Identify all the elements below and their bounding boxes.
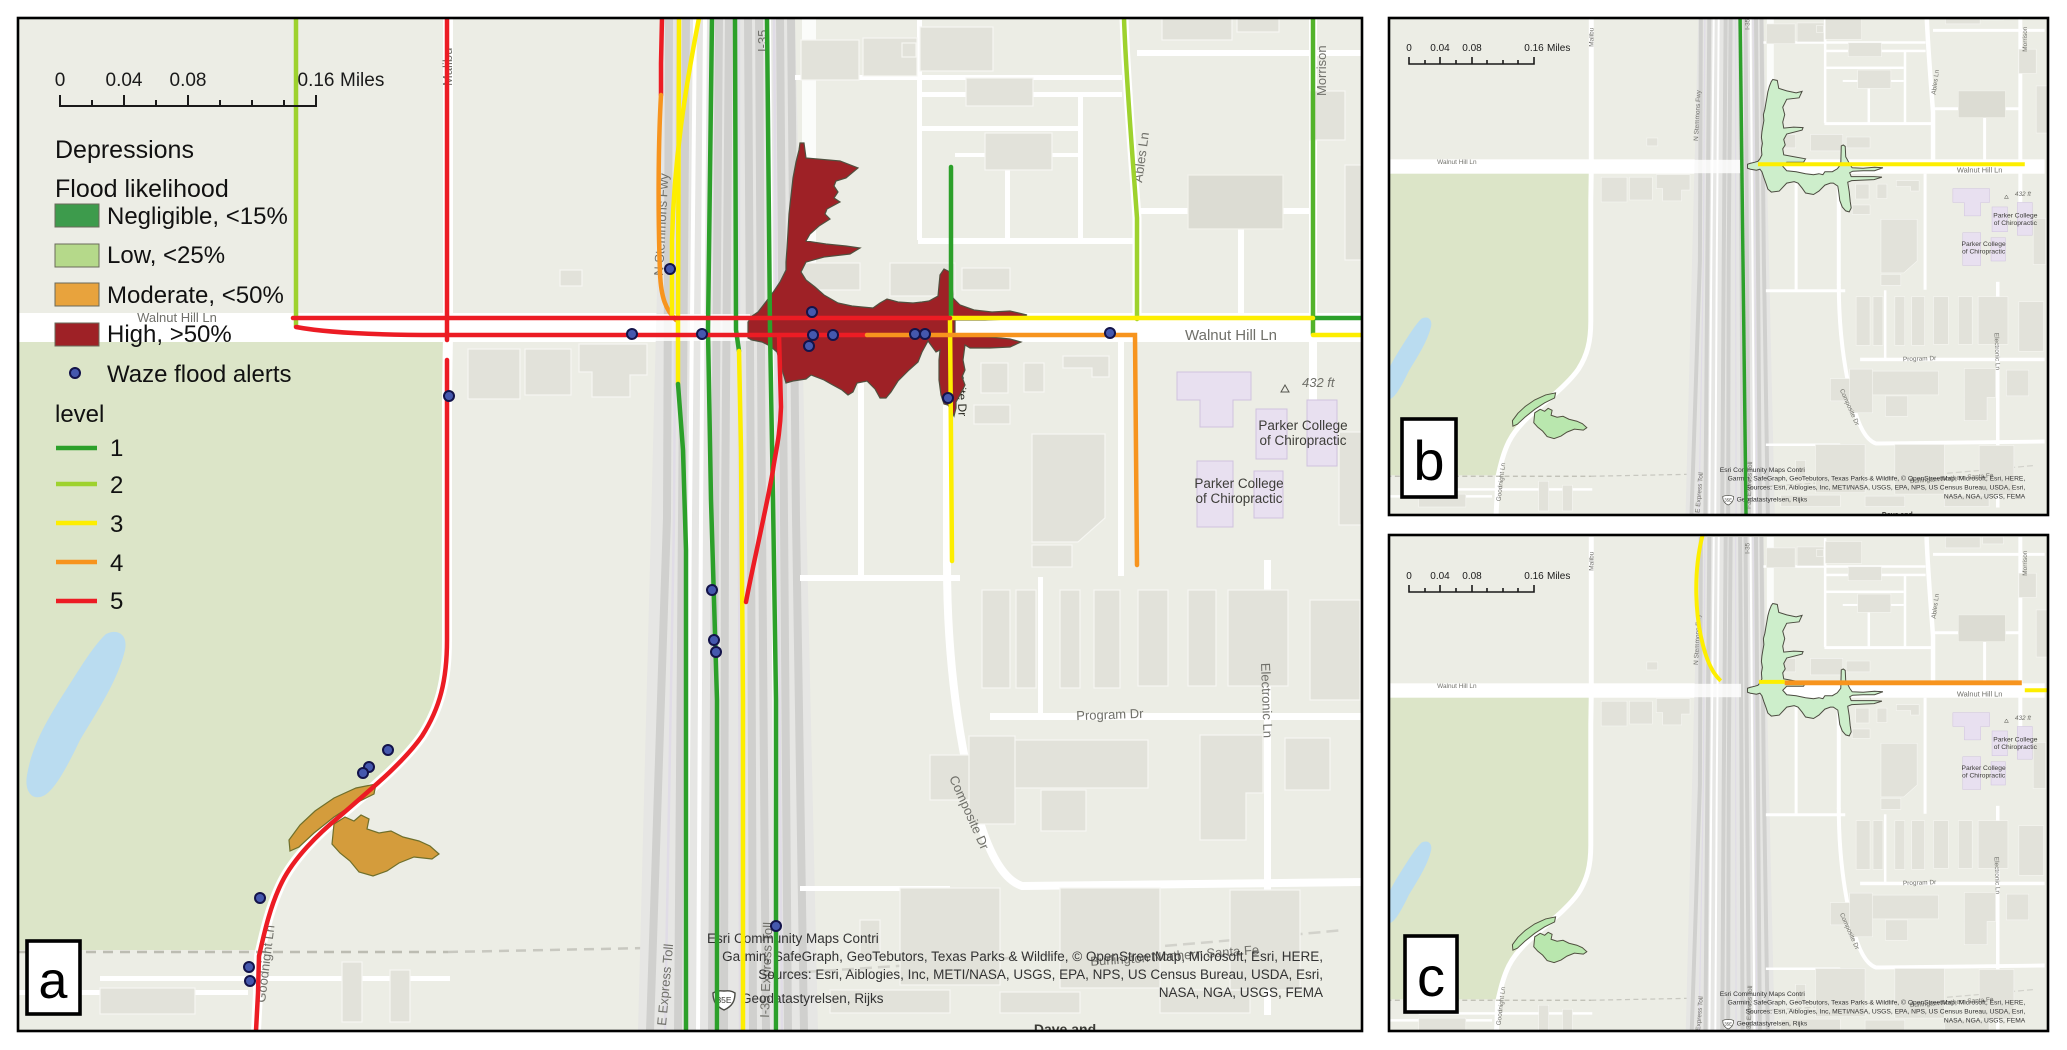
svg-text:Miles: Miles — [1547, 571, 1570, 582]
svg-text:0.16: 0.16 — [1524, 43, 1544, 54]
svg-text:3: 3 — [110, 511, 123, 538]
svg-text:0.08: 0.08 — [1462, 43, 1482, 54]
svg-text:a: a — [39, 952, 68, 1010]
svg-text:Waze flood alerts: Waze flood alerts — [107, 361, 292, 388]
svg-text:c: c — [1417, 945, 1445, 1008]
svg-text:b: b — [1413, 429, 1444, 492]
svg-text:0: 0 — [1406, 571, 1412, 582]
svg-text:Depressions: Depressions — [55, 136, 194, 164]
svg-text:5: 5 — [110, 588, 123, 615]
svg-text:0.04: 0.04 — [1430, 571, 1450, 582]
svg-text:0.08: 0.08 — [1462, 571, 1482, 582]
svg-text:2: 2 — [110, 472, 123, 499]
svg-text:0.16: 0.16 — [1524, 571, 1544, 582]
svg-text:4: 4 — [110, 550, 123, 577]
svg-text:Flood likelihood: Flood likelihood — [55, 175, 229, 203]
svg-text:0.08: 0.08 — [170, 70, 207, 91]
svg-text:High, >50%: High, >50% — [107, 321, 232, 348]
svg-text:0.04: 0.04 — [1430, 43, 1450, 54]
svg-text:level: level — [55, 401, 104, 428]
svg-text:1: 1 — [110, 435, 123, 462]
svg-text:Negligible, <15%: Negligible, <15% — [107, 203, 288, 230]
svg-text:0: 0 — [55, 70, 66, 91]
svg-text:Miles: Miles — [340, 70, 384, 91]
svg-text:0.16: 0.16 — [298, 70, 335, 91]
svg-text:Miles: Miles — [1547, 43, 1570, 54]
svg-text:Moderate, <50%: Moderate, <50% — [107, 282, 284, 309]
svg-text:Low, <25%: Low, <25% — [107, 242, 225, 269]
svg-text:0.04: 0.04 — [106, 70, 143, 91]
svg-text:0: 0 — [1406, 43, 1412, 54]
